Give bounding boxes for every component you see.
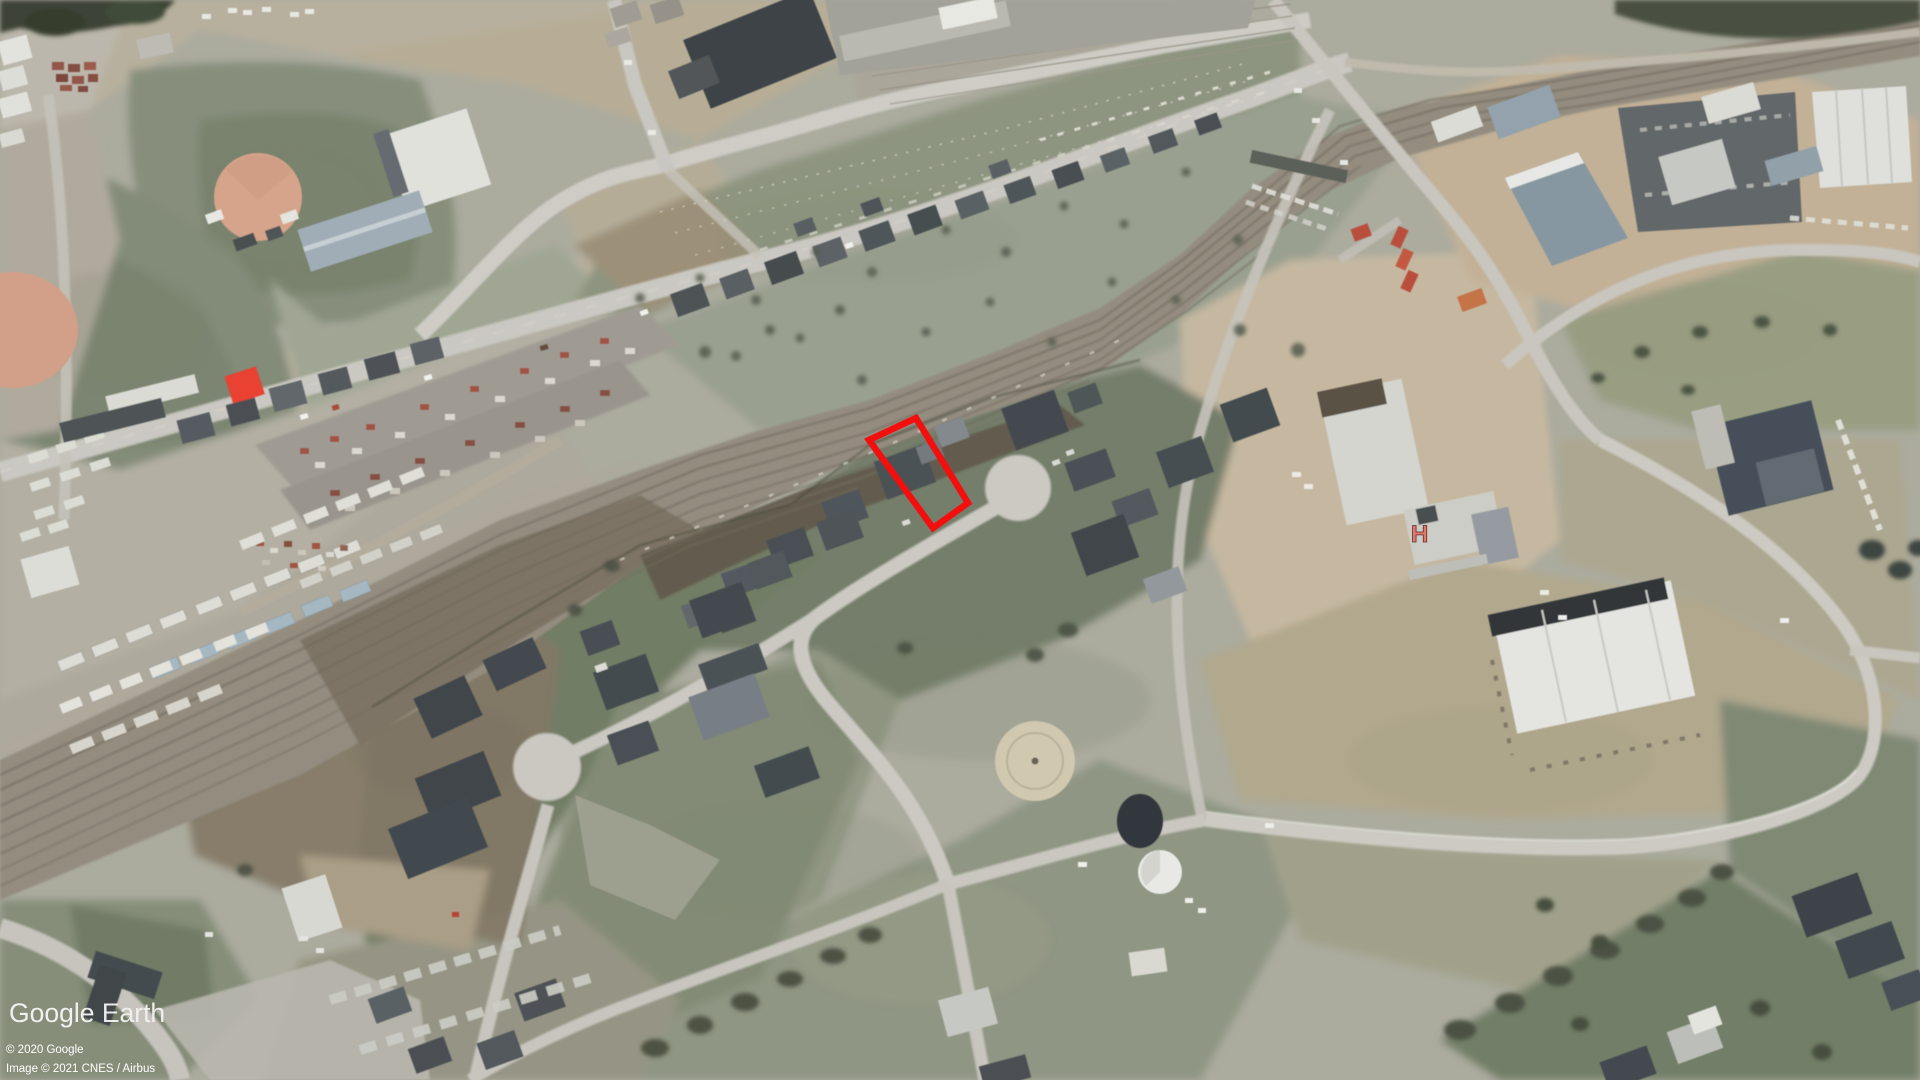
svg-text:Google Earth: Google Earth bbox=[9, 998, 165, 1028]
svg-text:Image © 2021 CNES / Airbus: Image © 2021 CNES / Airbus bbox=[6, 1063, 155, 1075]
svg-text:H: H bbox=[1411, 521, 1428, 548]
svg-text:© 2020 Google: © 2020 Google bbox=[6, 1044, 84, 1056]
